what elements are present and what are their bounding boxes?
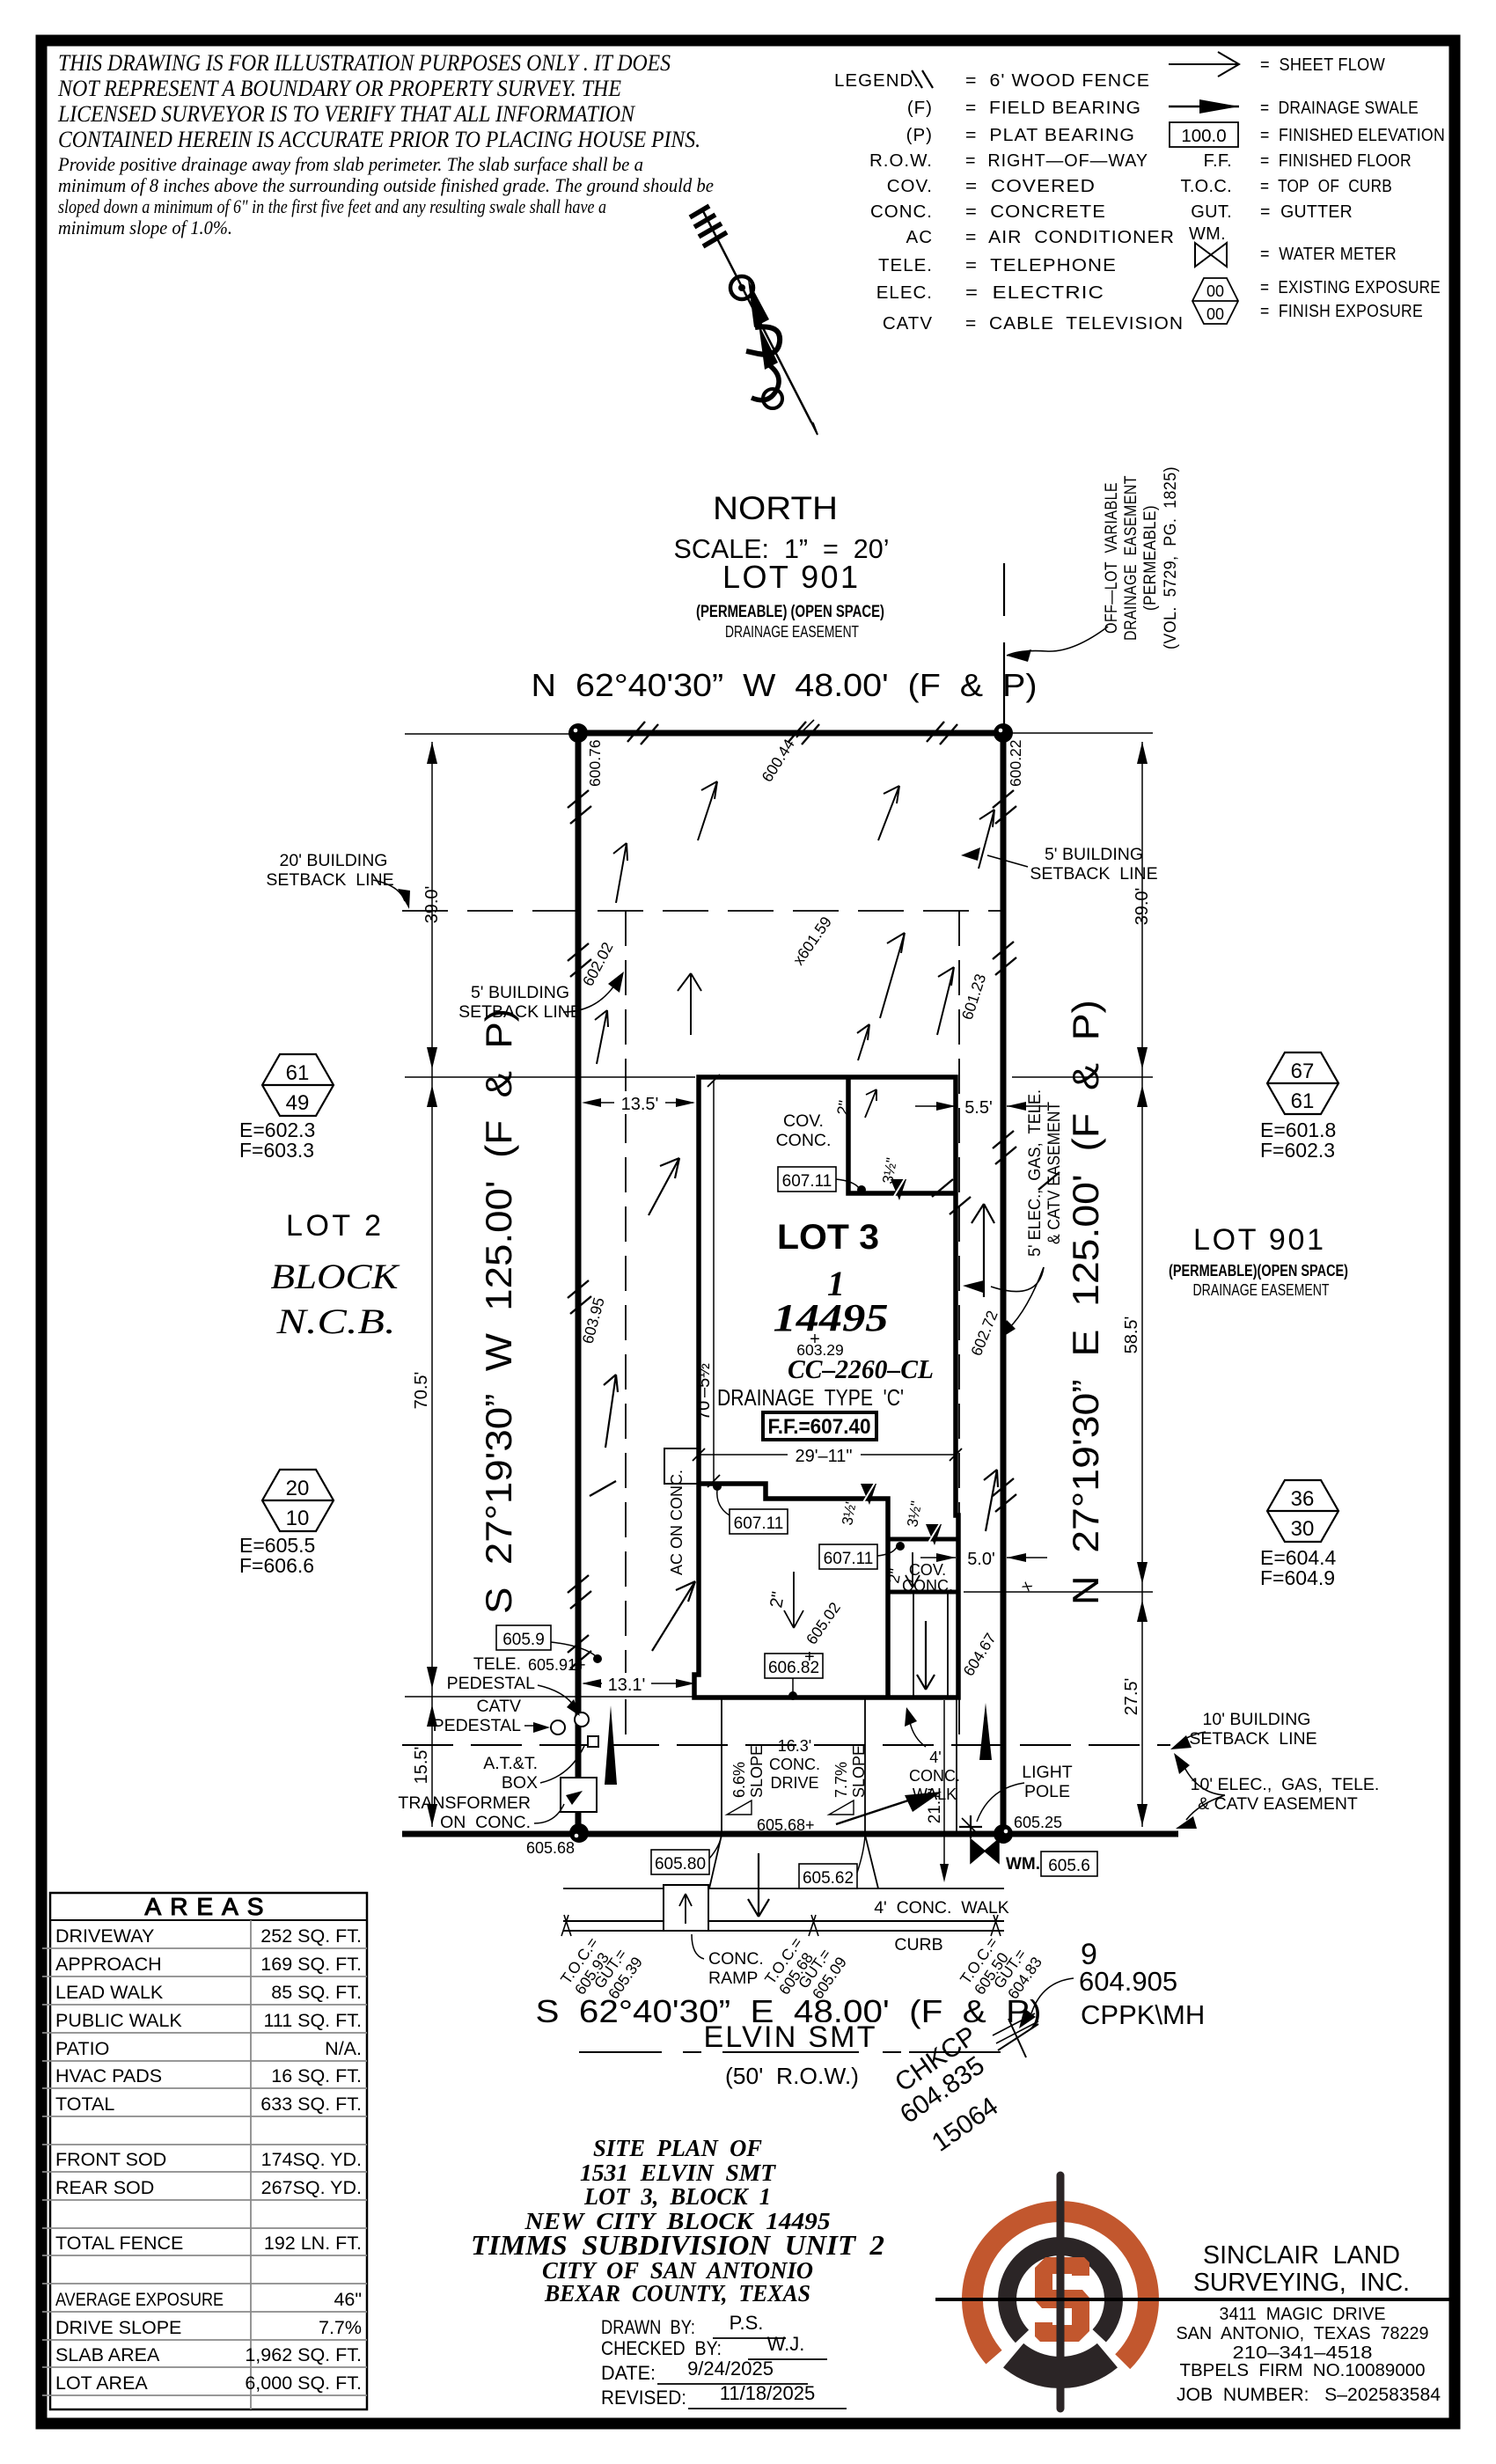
- svg-text:00: 00: [1206, 305, 1224, 323]
- svg-text:21.7': 21.7': [926, 1788, 944, 1824]
- svg-text:POLE: POLE: [1024, 1782, 1070, 1801]
- svg-text:(F): (F): [907, 98, 933, 118]
- svg-text:= CABLE TELEVISION: = CABLE TELEVISION: [965, 313, 1184, 334]
- svg-text:5' BUILDING: 5' BUILDING: [471, 983, 569, 1002]
- svg-text:A.T.&T.: A.T.&T.: [483, 1754, 538, 1773]
- svg-text:N/A.: N/A.: [325, 2038, 362, 2059]
- svg-text:30: 30: [1291, 1517, 1315, 1541]
- svg-text:58.5': 58.5': [1122, 1316, 1141, 1354]
- svg-text:= CONCRETE: = CONCRETE: [965, 202, 1106, 222]
- svg-text:605.68+: 605.68+: [757, 1816, 815, 1834]
- svg-text:607.11: 607.11: [734, 1514, 784, 1533]
- svg-text:CC–2260–CL: CC–2260–CL: [788, 1353, 934, 1384]
- svg-text:SITE PLAN OF: SITE PLAN OF: [593, 2135, 762, 2161]
- svg-text:3411 MAGIC DRIVE: 3411 MAGIC DRIVE: [1220, 2305, 1386, 2324]
- svg-text:SLAB AREA: SLAB AREA: [55, 2344, 160, 2365]
- svg-text:SETBACK LINE: SETBACK LINE: [1030, 864, 1157, 884]
- svg-text:= FINISHED FLOOR: = FINISHED FLOOR: [1260, 151, 1412, 171]
- svg-text:= PLAT BEARING: = PLAT BEARING: [965, 125, 1135, 145]
- svg-text:(PERMEABLE) (OPEN SPACE): (PERMEABLE) (OPEN SPACE): [696, 603, 884, 621]
- svg-text:36: 36: [1291, 1487, 1315, 1511]
- svg-text:P.S.: P.S.: [730, 2312, 764, 2334]
- svg-text:DRIVE SLOPE: DRIVE SLOPE: [55, 2317, 181, 2338]
- svg-text:CONTAINED HEREIN IS ACCURATE P: CONTAINED HEREIN IS ACCURATE PRIOR TO PL…: [58, 126, 700, 152]
- svg-text:61: 61: [286, 1061, 310, 1085]
- svg-text:SETBACK LINE: SETBACK LINE: [1189, 1729, 1316, 1749]
- svg-text:PEDESTAL: PEDESTAL: [433, 1716, 522, 1735]
- svg-text:CPPK\MH: CPPK\MH: [1081, 1999, 1205, 2030]
- svg-text:sloped down a minimum of 6" in: sloped down a minimum of 6" in the first…: [58, 195, 606, 217]
- svg-text:11/18/2025: 11/18/2025: [720, 2382, 815, 2404]
- svg-text:605.6: 605.6: [1048, 1857, 1090, 1875]
- svg-text:= DRAINAGE SWALE: = DRAINAGE SWALE: [1260, 99, 1419, 118]
- svg-text:13.1': 13.1': [608, 1676, 646, 1695]
- svg-text:46": 46": [334, 2289, 362, 2310]
- svg-text:F.F.: F.F.: [1204, 151, 1232, 171]
- svg-text:PATIO: PATIO: [55, 2038, 109, 2059]
- svg-text:15.5': 15.5': [412, 1747, 431, 1785]
- svg-text:LOT 3, BLOCK 1: LOT 3, BLOCK 1: [583, 2183, 771, 2210]
- svg-text:= ELECTRIC: = ELECTRIC: [965, 282, 1104, 303]
- svg-text:PUBLIC WALK: PUBLIC WALK: [55, 2010, 182, 2031]
- svg-text:LOT 2: LOT 2: [286, 1209, 381, 1243]
- svg-text:LOT 3: LOT 3: [777, 1218, 879, 1257]
- svg-text:DRAINAGE EASEMENT: DRAINAGE EASEMENT: [1121, 475, 1140, 641]
- svg-text:210–341–4518: 210–341–4518: [1233, 2343, 1373, 2363]
- svg-text:192 LN. FT.: 192 LN. FT.: [264, 2233, 362, 2254]
- svg-text:67: 67: [1291, 1060, 1315, 1083]
- svg-text:OFF—LOT VARIABLE: OFF—LOT VARIABLE: [1102, 482, 1121, 634]
- svg-text:LOT 901: LOT 901: [722, 559, 858, 595]
- svg-text:CHECKED BY:: CHECKED BY:: [601, 2337, 722, 2359]
- svg-text:COV.: COV.: [887, 176, 933, 196]
- svg-text:= FINISHED ELEVATION: = FINISHED ELEVATION: [1260, 126, 1445, 145]
- svg-text:111 SQ. FT.: 111 SQ. FT.: [263, 2010, 362, 2031]
- svg-text:16.3': 16.3': [778, 1737, 811, 1755]
- svg-text:FRONT SOD: FRONT SOD: [55, 2149, 166, 2170]
- svg-text:(50' R.O.W.): (50' R.O.W.): [725, 2063, 859, 2089]
- svg-text:BOX: BOX: [502, 1773, 538, 1793]
- svg-text:COV.: COV.: [783, 1111, 824, 1131]
- svg-text:DRAINAGE EASEMENT: DRAINAGE EASEMENT: [725, 623, 859, 641]
- svg-text:14495: 14495: [774, 1296, 889, 1339]
- svg-text:DRIVEWAY: DRIVEWAY: [55, 1925, 154, 1947]
- svg-text:NORTH: NORTH: [713, 490, 838, 526]
- svg-text:1531 ELVIN SMT: 1531 ELVIN SMT: [580, 2160, 777, 2186]
- svg-text:10: 10: [286, 1507, 310, 1530]
- svg-text:70.5': 70.5': [412, 1372, 431, 1410]
- svg-text:20' BUILDING: 20' BUILDING: [280, 851, 388, 870]
- svg-text:4' CONC. WALK: 4' CONC. WALK: [874, 1898, 1009, 1918]
- svg-text:2": 2": [833, 1099, 854, 1117]
- svg-text:600.22: 600.22: [1007, 739, 1024, 787]
- svg-text:4': 4': [929, 1749, 941, 1766]
- svg-text:1,962 SQ. FT.: 1,962 SQ. FT.: [245, 2344, 362, 2365]
- svg-text:10' ELEC., GAS, TELE.: 10' ELEC., GAS, TELE.: [1191, 1775, 1380, 1794]
- svg-text:252 SQ. FT.: 252 SQ. FT.: [260, 1925, 362, 1947]
- svg-text:SLOPE: SLOPE: [850, 1745, 868, 1798]
- svg-text:COV.: COV.: [909, 1561, 946, 1579]
- svg-text:F=606.6: F=606.6: [239, 1554, 314, 1577]
- svg-text:= TELEPHONE: = TELEPHONE: [965, 255, 1117, 275]
- svg-text:CURB: CURB: [894, 1935, 942, 1954]
- svg-text:= GUTTER: = GUTTER: [1260, 202, 1353, 222]
- svg-text:LOT 901: LOT 901: [1193, 1223, 1324, 1257]
- svg-text:= FINISH EXPOSURE: = FINISH EXPOSURE: [1260, 302, 1423, 321]
- svg-text:10' BUILDING: 10' BUILDING: [1203, 1710, 1311, 1729]
- svg-text:CONC.: CONC.: [776, 1131, 832, 1150]
- svg-text:00: 00: [1206, 282, 1224, 300]
- svg-text:DRAWN BY:: DRAWN BY:: [601, 2316, 695, 2338]
- svg-text:NOT REPRESENT A BOUNDARY OR PR: NOT REPRESENT A BOUNDARY OR PROPERTY SUR…: [57, 75, 621, 101]
- svg-text:5' BUILDING: 5' BUILDING: [1045, 845, 1143, 864]
- svg-text:GUT.: GUT.: [1191, 202, 1232, 222]
- svg-text:633 SQ. FT.: 633 SQ. FT.: [260, 2094, 362, 2115]
- svg-text:169 SQ. FT.: 169 SQ. FT.: [260, 1954, 362, 1975]
- svg-text:= 6' WOOD FENCE: = 6' WOOD FENCE: [965, 70, 1150, 91]
- svg-text:& CATV EASEMENT: & CATV EASEMENT: [1045, 1102, 1064, 1244]
- svg-text:AC ON CONC.: AC ON CONC.: [668, 1470, 686, 1575]
- svg-text:REAR SOD: REAR SOD: [55, 2177, 154, 2198]
- svg-text:TOTAL: TOTAL: [55, 2094, 114, 2115]
- svg-text:S 27°19'30” W 125.00' (F: S 27°19'30” W 125.00' (F & P): [478, 1008, 519, 1614]
- svg-text:ELVIN SMT: ELVIN SMT: [704, 2020, 876, 2054]
- svg-text:7.7%: 7.7%: [319, 2317, 362, 2338]
- svg-text:(PERMEABLE)(OPEN SPACE): (PERMEABLE)(OPEN SPACE): [1169, 1261, 1348, 1280]
- svg-text:= RIGHT—OF—WAY: = RIGHT—OF—WAY: [965, 150, 1148, 171]
- svg-text:SINCLAIR LAND: SINCLAIR LAND: [1203, 2241, 1400, 2270]
- svg-text:N 27°19'30” E 125.00' (F: N 27°19'30” E 125.00' (F & P): [1065, 1000, 1106, 1605]
- svg-text:2": 2": [884, 1567, 905, 1585]
- svg-text:DRAINAGE TYPE 'C': DRAINAGE TYPE 'C': [717, 1384, 904, 1411]
- svg-text:CONC.: CONC.: [708, 1949, 764, 1969]
- svg-text:85 SQ. FT.: 85 SQ. FT.: [271, 1982, 362, 2003]
- svg-text:BLOCK: BLOCK: [271, 1257, 401, 1296]
- svg-text:F=603.3: F=603.3: [239, 1139, 314, 1162]
- svg-text:RAMP: RAMP: [708, 1969, 758, 1988]
- svg-text:Provide positive drainage away: Provide positive drainage away from slab…: [57, 153, 643, 175]
- svg-text:SETBACK LINE: SETBACK LINE: [458, 1002, 582, 1022]
- svg-text:SURVEYING, INC.: SURVEYING, INC.: [1193, 2269, 1410, 2297]
- svg-text:minimum slope of 1.0%.: minimum slope of 1.0%.: [58, 216, 232, 238]
- svg-text:CONC.: CONC.: [909, 1767, 960, 1785]
- svg-text:F.F.=607.40: F.F.=607.40: [768, 1415, 871, 1439]
- svg-text:DRAINAGE EASEMENT: DRAINAGE EASEMENT: [1193, 1281, 1330, 1299]
- svg-text:TBPELS FIRM NO.10089000: TBPELS FIRM NO.10089000: [1180, 2361, 1426, 2380]
- svg-text:607.11: 607.11: [782, 1172, 832, 1191]
- svg-text:TRANSFORMER: TRANSFORMER: [398, 1793, 531, 1813]
- svg-text:TELE.: TELE.: [473, 1654, 521, 1674]
- svg-text:TOTAL FENCE: TOTAL FENCE: [55, 2233, 183, 2254]
- svg-text:267SQ. YD.: 267SQ. YD.: [261, 2177, 362, 2198]
- svg-text:605.9: 605.9: [502, 1631, 545, 1649]
- svg-text:= SHEET FLOW: = SHEET FLOW: [1260, 55, 1385, 75]
- svg-text:AC: AC: [906, 227, 933, 247]
- svg-text:THIS DRAWING IS FOR ILLUSTRATI: THIS DRAWING IS FOR ILLUSTRATION PURPOSE…: [58, 49, 671, 76]
- svg-text:607.11: 607.11: [824, 1550, 874, 1568]
- svg-text:(P): (P): [906, 125, 933, 145]
- svg-text:9/24/2025: 9/24/2025: [687, 2358, 774, 2380]
- svg-text:CONC.: CONC.: [902, 1577, 953, 1595]
- svg-text:LEGEND:: LEGEND:: [834, 70, 920, 91]
- svg-text:ELEC.: ELEC.: [876, 282, 933, 303]
- svg-text:174SQ. YD.: 174SQ. YD.: [261, 2149, 362, 2170]
- svg-text:= COVERED: = COVERED: [965, 176, 1096, 196]
- svg-text:605.25: 605.25: [1014, 1814, 1062, 1831]
- svg-text:minimum of 8 inches above the: minimum of 8 inches above the surroundin…: [58, 174, 714, 196]
- svg-text:49: 49: [286, 1091, 310, 1115]
- svg-text:CATV: CATV: [883, 313, 933, 334]
- svg-text:BEXAR COUNTY, TEXAS: BEXAR COUNTY, TEXAS: [544, 2280, 810, 2306]
- svg-text:LEAD WALK: LEAD WALK: [55, 1982, 164, 2003]
- svg-text:WM.: WM.: [1006, 1855, 1040, 1874]
- svg-text:5' ELEC., GAS, TELE.: 5' ELEC., GAS, TELE.: [1025, 1089, 1045, 1257]
- svg-text:605.91+: 605.91+: [528, 1656, 586, 1674]
- svg-text:(PERMEABLE): (PERMEABLE): [1140, 505, 1160, 611]
- svg-text:& CATV EASEMENT: & CATV EASEMENT: [1198, 1794, 1358, 1814]
- svg-text:7.7%: 7.7%: [832, 1762, 850, 1798]
- svg-text:HVAC PADS: HVAC PADS: [55, 2065, 162, 2086]
- svg-text:6.6%: 6.6%: [730, 1762, 748, 1798]
- svg-text:F=604.9: F=604.9: [1260, 1566, 1335, 1589]
- svg-text:CATV: CATV: [476, 1697, 521, 1716]
- svg-text:= WATER METER: = WATER METER: [1260, 245, 1397, 264]
- svg-text:605.80: 605.80: [655, 1855, 706, 1874]
- svg-text:N 62°40'30” W 48.00' (F &: N 62°40'30” W 48.00' (F & P): [532, 667, 1038, 703]
- svg-text:605.62: 605.62: [803, 1869, 854, 1888]
- svg-text:R.O.W.: R.O.W.: [869, 150, 933, 171]
- svg-text:39.0': 39.0': [1133, 888, 1152, 926]
- svg-text:SLOPE: SLOPE: [748, 1745, 766, 1798]
- svg-text:AVERAGE EXPOSURE: AVERAGE EXPOSURE: [55, 2289, 224, 2310]
- svg-text:CONC.: CONC.: [870, 202, 933, 222]
- svg-text:604.905: 604.905: [1079, 1966, 1177, 1997]
- svg-text:LICENSED SURVEYOR IS TO VERIFY: LICENSED SURVEYOR IS TO VERIFY THAT ALL …: [57, 100, 635, 127]
- svg-text:T.O.C.: T.O.C.: [1181, 177, 1232, 196]
- svg-text:5.0': 5.0': [967, 1550, 995, 1569]
- svg-text:PEDESTAL: PEDESTAL: [447, 1674, 536, 1693]
- svg-text:JOB NUMBER: S–202583584: JOB NUMBER: S–202583584: [1177, 2385, 1441, 2405]
- svg-text:20: 20: [286, 1477, 310, 1500]
- svg-text:N.C.B.: N.C.B.: [275, 1302, 395, 1341]
- svg-text:61: 61: [1291, 1089, 1315, 1113]
- svg-text:29'–11": 29'–11": [795, 1447, 852, 1466]
- svg-text:W.J.: W.J.: [767, 2333, 805, 2355]
- svg-text:= TOP OF CURB: = TOP OF CURB: [1260, 177, 1392, 196]
- svg-text:= EXISTING EXPOSURE: = EXISTING EXPOSURE: [1260, 278, 1441, 297]
- svg-text:27.5': 27.5': [1122, 1678, 1141, 1716]
- svg-text:16 SQ. FT.: 16 SQ. FT.: [271, 2065, 362, 2086]
- svg-text:13.5': 13.5': [621, 1095, 659, 1114]
- svg-text:= AIR CONDITIONER: = AIR CONDITIONER: [965, 227, 1175, 247]
- svg-text:DRIVE: DRIVE: [770, 1774, 818, 1792]
- svg-text:39.0': 39.0': [422, 886, 442, 924]
- svg-text:LIGHT: LIGHT: [1022, 1763, 1073, 1782]
- svg-text:= FIELD BEARING: = FIELD BEARING: [965, 98, 1141, 118]
- svg-text:5.5': 5.5': [964, 1098, 993, 1118]
- svg-text:SAN ANTONIO, TEXAS 78229: SAN ANTONIO, TEXAS 78229: [1177, 2324, 1429, 2343]
- svg-text:(VOL. 5729, PG. 1825): (VOL. 5729, PG. 1825): [1161, 466, 1180, 649]
- svg-text:ON CONC.: ON CONC.: [440, 1813, 531, 1832]
- svg-text:TIMMS SUBDIVISION UNIT 2: TIMMS SUBDIVISION UNIT 2: [471, 2229, 884, 2261]
- svg-text:600.76: 600.76: [586, 739, 604, 787]
- svg-text:100.0: 100.0: [1181, 126, 1226, 146]
- svg-text:REVISED:: REVISED:: [601, 2387, 686, 2409]
- svg-text:AREAS: AREAS: [145, 1893, 273, 1920]
- svg-text:APPROACH: APPROACH: [55, 1954, 162, 1975]
- svg-text:F=602.3: F=602.3: [1260, 1139, 1335, 1162]
- svg-text:2": 2": [766, 1590, 788, 1610]
- svg-text:6,000 SQ. FT.: 6,000 SQ. FT.: [245, 2372, 362, 2394]
- svg-text:606.82: 606.82: [768, 1659, 819, 1677]
- svg-text:70'–5½": 70'–5½": [694, 1357, 714, 1420]
- svg-text:DATE:: DATE:: [601, 2362, 656, 2384]
- svg-text:LOT AREA: LOT AREA: [55, 2372, 148, 2394]
- svg-text:CONC.: CONC.: [769, 1756, 820, 1773]
- svg-text:WM.: WM.: [1189, 224, 1226, 244]
- svg-text:TELE.: TELE.: [878, 255, 933, 275]
- svg-text:605.68: 605.68: [526, 1839, 575, 1857]
